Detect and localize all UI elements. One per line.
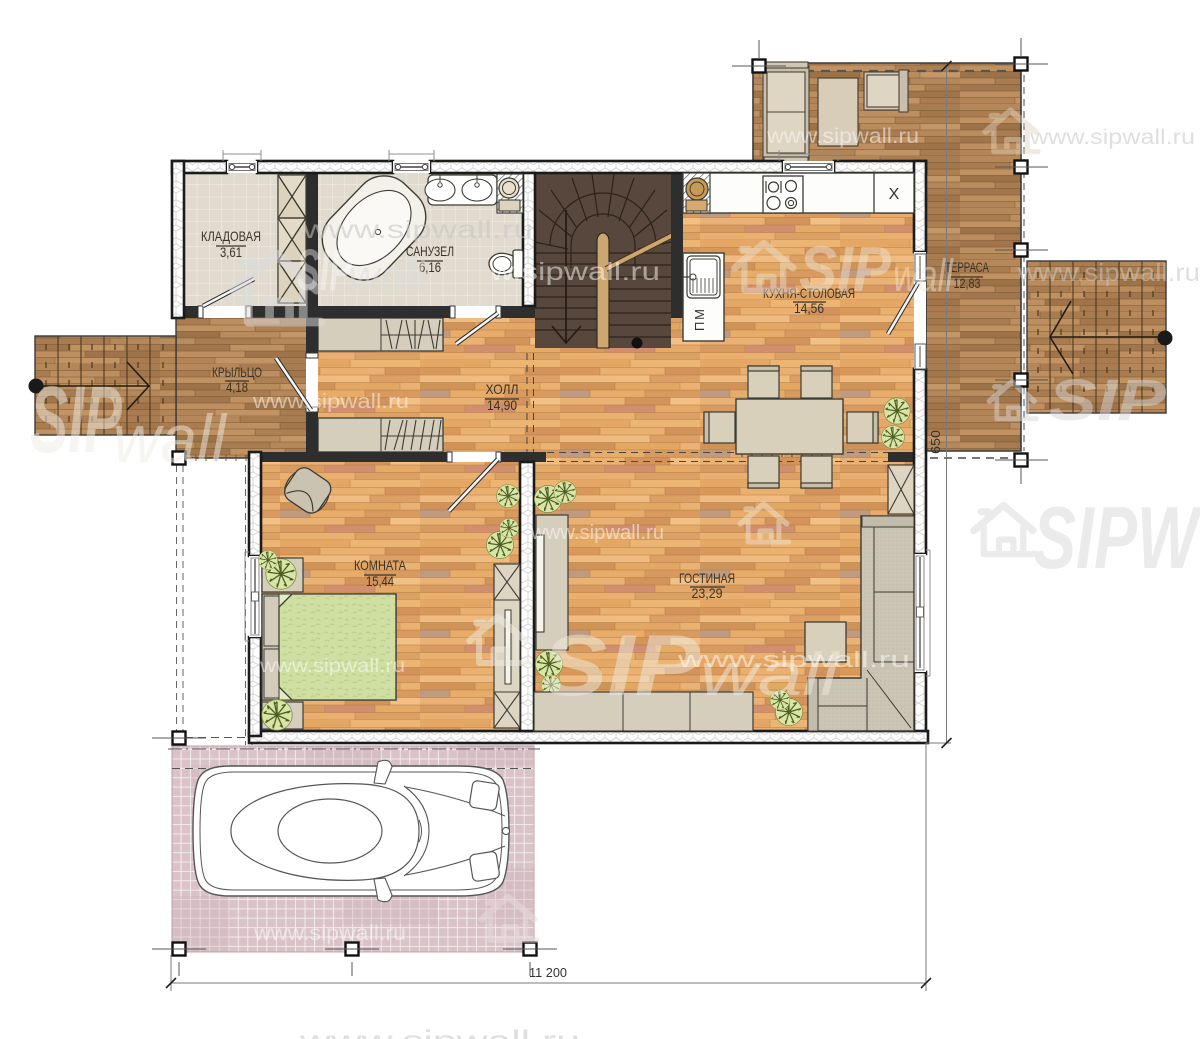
svg-text:КУХНЯ-СТОЛОВАЯ: КУХНЯ-СТОЛОВАЯ bbox=[763, 285, 855, 301]
svg-text:11 200: 11 200 bbox=[529, 965, 567, 980]
svg-text:ГОСТИНАЯ: ГОСТИНАЯ bbox=[679, 570, 735, 586]
svg-text:ПМ: ПМ bbox=[692, 309, 707, 331]
svg-text:650: 650 bbox=[928, 430, 943, 454]
svg-text:ТЕРРАСА: ТЕРРАСА bbox=[945, 259, 989, 275]
svg-text:КРЫЛЬЦО: КРЫЛЬЦО bbox=[212, 364, 262, 380]
svg-text:САНУЗЕЛ: САНУЗЕЛ bbox=[406, 243, 454, 259]
svg-text:КОМНАТА: КОМНАТА bbox=[354, 557, 407, 573]
svg-text:X: X bbox=[889, 186, 900, 203]
svg-text:КЛАДОВАЯ: КЛАДОВАЯ bbox=[201, 228, 261, 244]
svg-text:ХОЛЛ: ХОЛЛ bbox=[486, 381, 519, 397]
